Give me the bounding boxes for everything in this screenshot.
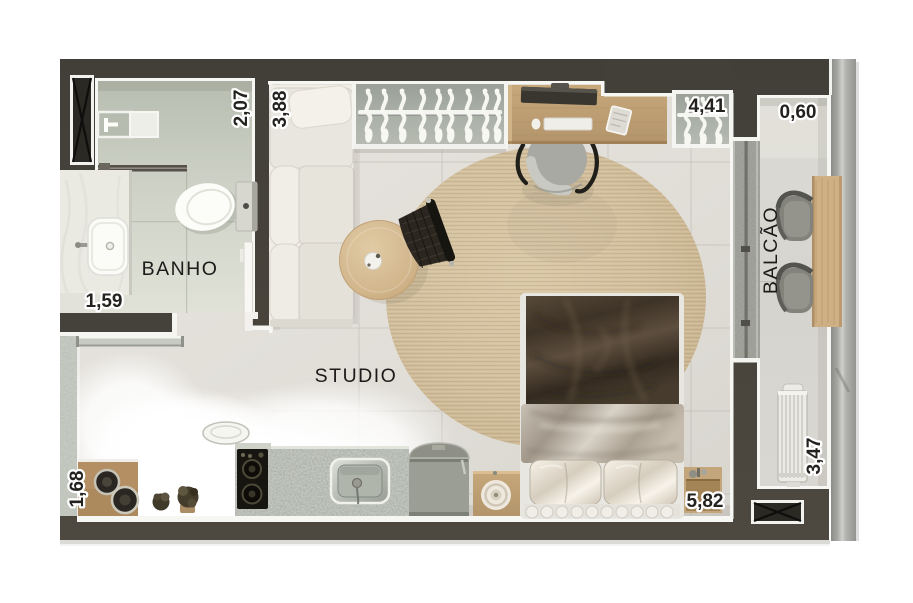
svg-text:1,59: 1,59: [86, 291, 123, 312]
svg-text:1,68: 1,68: [67, 471, 88, 508]
svg-text:3,88: 3,88: [270, 91, 291, 128]
svg-text:3,47: 3,47: [804, 438, 825, 475]
svg-text:2,07: 2,07: [231, 90, 252, 127]
svg-text:5,82: 5,82: [687, 491, 724, 512]
svg-text:4,41: 4,41: [689, 96, 726, 117]
svg-text:0,60: 0,60: [780, 102, 817, 123]
svg-text:BANHO: BANHO: [142, 258, 219, 280]
svg-text:BALCÃO: BALCÃO: [758, 206, 782, 294]
svg-text:STUDIO: STUDIO: [315, 365, 398, 387]
